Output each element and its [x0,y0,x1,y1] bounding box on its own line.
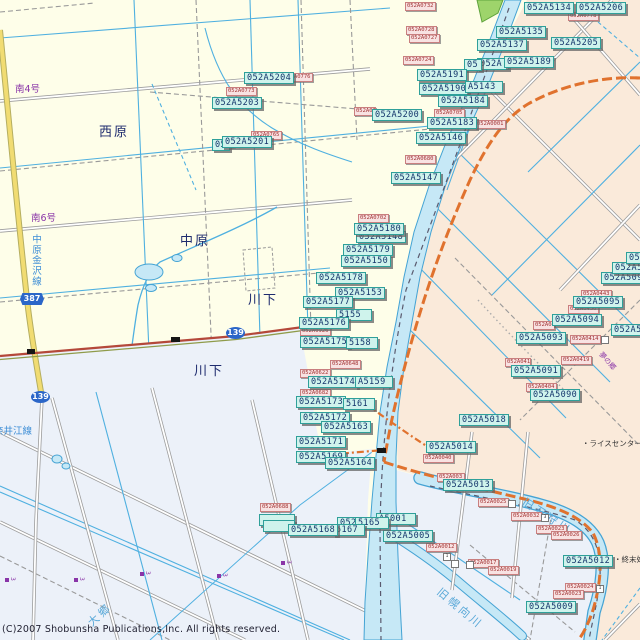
parcel-code-label[interactable]: 052A5205 [551,37,601,49]
number-marker: 1 [443,553,451,561]
parcel-code-label[interactable]: 052A5189 [504,56,554,68]
poi-label-rice-center: ・ライスセンター [582,438,640,449]
parcel-code-label[interactable]: 052A5095 [573,296,623,308]
parcel-code-label[interactable]: 052A5206 [576,2,626,14]
point-code-label[interactable]: 052A0012 [426,543,457,552]
point-code-label[interactable]: 052A0702 [358,214,389,223]
parcel-code-label[interactable]: 052A5176 [299,317,349,329]
parcel-code-label[interactable]: 052A5150 [341,255,391,267]
parcel-code-label[interactable]: 052A5091 [511,365,561,377]
parcel-code-label[interactable]: 052A5005 [383,530,433,542]
point-code-label[interactable]: 052A0023 [553,590,584,599]
point-code-label[interactable]: 052A0026 [551,531,582,540]
parcel-code-label[interactable]: 052A5184 [438,95,488,107]
parcel-code-label[interactable]: 052A5171 [296,436,346,448]
route-shield-139-b: 139 [31,391,50,403]
number-marker [466,561,474,569]
parcel-code-label[interactable]: 052A5168 [288,524,338,536]
parcel-code-label[interactable]: 052A5134 [524,2,574,14]
point-code-label[interactable]: 052A0419 [561,356,592,365]
route-shield-387: 387 [20,293,44,305]
number-marker: 1 [596,585,604,593]
place-label-nishihara: 西原 [99,121,129,140]
parcel-code-label[interactable]: 05 [626,252,640,264]
parcel-code-label[interactable]: A5143 [465,81,503,93]
point-code-label[interactable]: 052A0032 [511,512,542,521]
parcel-code-label[interactable]: 052A5183 [427,117,477,129]
map-canvas: 西原 中原 川下 川下 南4号 南6号 中原金沢線 奈井江線 旧石狩川 旧幌向川… [0,0,640,640]
parcel-code-label[interactable]: 052A5173 [296,396,346,408]
parcel-code-label[interactable]: 052A5013 [443,479,493,491]
point-code-label[interactable]: 052A0025 [478,498,509,507]
purple-marker: 3 [217,573,228,578]
road-label-minami4: 南4号 [15,81,40,95]
parcel-code-label[interactable]: 052A5164 [325,457,375,469]
parcel-code-label[interactable]: 052A5137 [477,39,527,51]
parcel-code-label[interactable]: 052A5135 [496,26,546,38]
parcel-code-label[interactable]: 052A5018 [459,414,509,426]
point-code-label[interactable]: 052A0414 [570,335,601,344]
parcel-code-label[interactable]: A5159 [355,376,393,388]
poi-label-sewage-plant: ・終末処 [614,554,640,565]
parcel-code-label[interactable]: 052A5009 [526,601,576,613]
number-marker [601,336,609,344]
parcel-code-label[interactable]: 052A5204 [244,72,294,84]
parcel-code-label[interactable]: 052A5163 [321,421,371,433]
parcel-code-label[interactable]: 052A5012 [563,555,613,567]
point-code-label[interactable]: 052A0773 [226,87,257,96]
purple-marker: 3 [281,560,292,565]
parcel-code-label[interactable]: 5158 [346,337,378,349]
parcel-code-label[interactable]: 052A5200 [372,109,422,121]
parcel-code-label[interactable]: 052A5093 [516,332,566,344]
parcel-code-label[interactable]: 052A5190 [419,83,469,95]
parcel-code-label[interactable]: 052A5175 [300,336,350,348]
parcel-code-label[interactable]: 5161 [343,398,375,410]
point-code-label[interactable]: 052A0019 [488,566,519,575]
parcel-code-label[interactable]: 052A5203 [212,97,262,109]
parcel-code-label[interactable]: 052A5094 [552,314,602,326]
parcel-code-label[interactable]: 052A5180 [354,223,404,235]
point-code-label[interactable]: 052A0040 [423,454,454,463]
place-label-kawashita-1: 川下 [248,289,278,308]
number-marker [508,500,516,508]
number-marker [451,560,459,568]
point-code-label[interactable]: 052A0001 [475,120,506,129]
parcel-code-label[interactable]: 052A5147 [391,172,441,184]
parcel-code-label[interactable]: 052A5146 [416,132,466,144]
road-label-naie-line: 奈井江線 [0,423,32,437]
parcel-code-label[interactable]: 052A5191 [417,69,467,81]
parcel-code-label[interactable]: 052A50 [611,324,640,336]
parcel-code-label[interactable]: 052A5178 [316,272,366,284]
road-label-nakahara-kanazawa-line: 中原金沢線 [28,234,42,287]
point-code-label[interactable]: 052A0732 [405,2,436,11]
road-label-minami6: 南6号 [31,210,56,224]
parcel-code-label[interactable]: 052A5177 [303,296,353,308]
place-label-kawashita-2: 川下 [194,360,224,379]
purple-marker: 3 [74,577,85,582]
point-code-label[interactable]: 052A0680 [405,155,436,164]
parcel-code-label[interactable]: 052A5090 [530,389,580,401]
parcel-code-label[interactable]: 052A5201 [222,136,272,148]
place-label-nakahara: 中原 [180,230,210,249]
parcel-code-label[interactable]: 052A5014 [426,441,476,453]
parcel-code-label[interactable]: 052A5174 [308,376,358,388]
purple-marker: 3 [140,571,151,576]
point-code-label[interactable]: 052A0688 [260,503,291,512]
point-code-label[interactable]: 052A0724 [403,56,434,65]
point-code-label[interactable]: 052A0648 [330,360,361,369]
point-code-label[interactable]: 052A0727 [409,34,440,43]
purple-marker: 3 [5,577,16,582]
number-marker: 3 [541,514,549,522]
route-shield-139-a: 139 [226,327,245,339]
copyright-notice: (C)2007 Shobunsha Publications,Inc. All … [2,624,280,635]
